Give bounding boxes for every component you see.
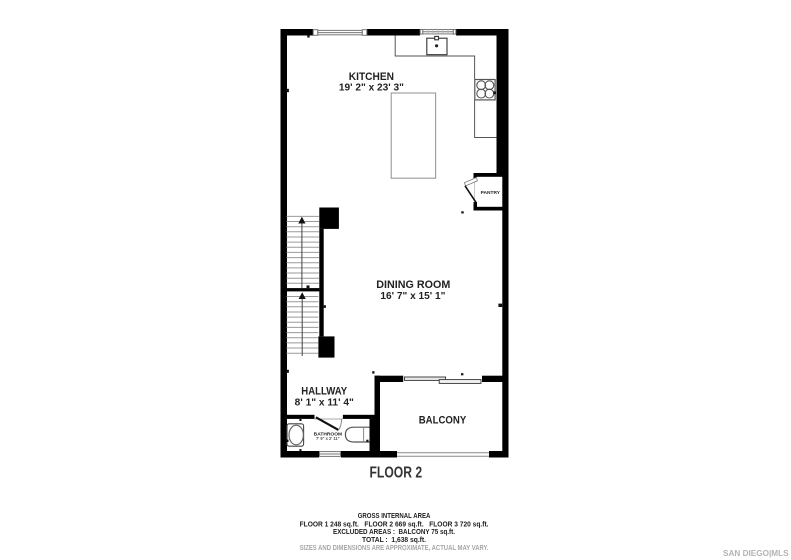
svg-text:DINING ROOM: DINING ROOM [376, 279, 450, 291]
svg-text:KITCHEN: KITCHEN [349, 71, 394, 83]
svg-text:FLOOR 1 248 sq.ft. FLOOR 2 6: FLOOR 1 248 sq.ft. FLOOR 2 669 sq.ft. FL… [300, 521, 489, 528]
svg-text:16' 7" x 15' 1": 16' 7" x 15' 1" [380, 291, 445, 302]
svg-text:SAN DIEGO|MLS: SAN DIEGO|MLS [723, 548, 789, 558]
svg-text:FLOOR 2: FLOOR 2 [370, 464, 423, 481]
svg-text:HALLWAY: HALLWAY [301, 385, 347, 397]
svg-text:EXCLUDED AREAS : BALCONY 75 s: EXCLUDED AREAS : BALCONY 75 sq.ft. [333, 529, 455, 536]
svg-text:GROSS INTERNAL AREA: GROSS INTERNAL AREA [358, 513, 431, 520]
svg-text:BALCONY: BALCONY [419, 414, 467, 426]
svg-text:PANTRY: PANTRY [481, 190, 501, 196]
svg-text:SIZES AND DIMENSIONS ARE APPRO: SIZES AND DIMENSIONS ARE APPROXIMATE, AC… [300, 545, 489, 552]
svg-text:TOTAL : 1,638 sq.ft.: TOTAL : 1,638 sq.ft. [362, 537, 426, 544]
svg-text:7' 9" x 2' 11": 7' 9" x 2' 11" [316, 436, 340, 441]
svg-text:19' 2" x 23' 3": 19' 2" x 23' 3" [339, 82, 404, 93]
svg-text:8' 1" x 11' 4": 8' 1" x 11' 4" [295, 398, 354, 409]
